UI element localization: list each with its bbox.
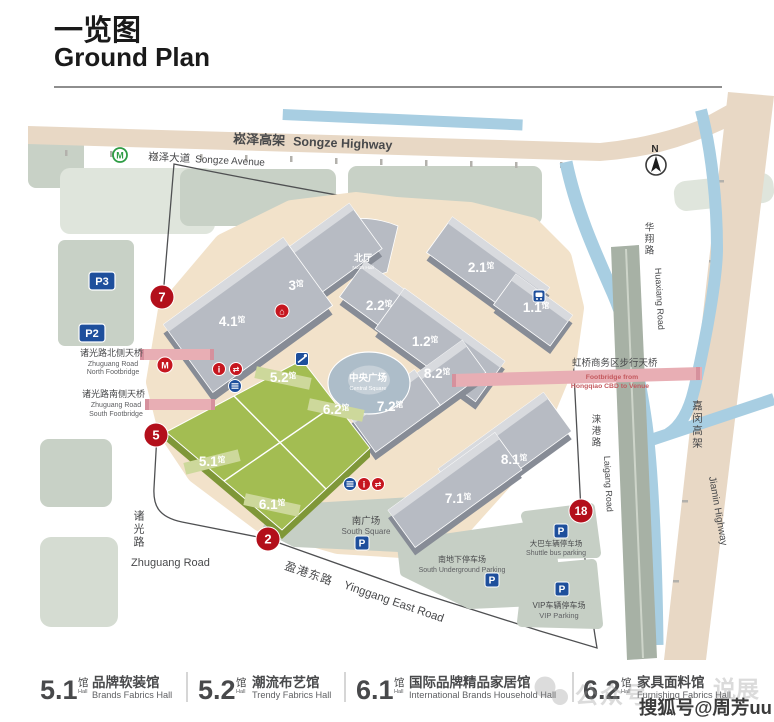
compass-label: N	[651, 144, 658, 155]
legend-hall-suffix: 馆	[78, 676, 89, 689]
watermark-sohu-text: 搜狐号@周芳uu	[639, 697, 772, 718]
page-title-en: Ground Plan	[54, 42, 210, 72]
hongqiao-footbridge-label-en1: Footbridge from	[586, 374, 638, 381]
legend-hall-name-en: International Brands Household Hall	[409, 690, 556, 700]
parking-badge-p3: P3	[89, 272, 115, 290]
laigang-road-label-zh: 涞港路	[590, 414, 602, 449]
legend-hall-name-zh: 潮流布艺馆	[252, 674, 320, 690]
house-icon: ⌂	[275, 304, 289, 318]
svg-text:P: P	[489, 576, 496, 587]
gate-marker-5: 5	[144, 423, 168, 447]
legend-hall-name-en: Brands Fabrics Hall	[92, 690, 172, 700]
svg-text:2: 2	[264, 532, 271, 547]
north-footbridge-label-en1: Zhuguang Road	[88, 361, 138, 368]
underground-parking-label-zh: 南地下停车场	[438, 554, 486, 564]
svg-text:5: 5	[152, 428, 159, 443]
parking-icon-shuttle: P	[554, 524, 568, 538]
svg-text:i: i	[363, 480, 366, 490]
parking-icon-south-square: P	[355, 536, 369, 550]
hongqiao-footbridge-label-en2: Hongqiao CBD to Venue	[571, 383, 649, 390]
svg-text:P3: P3	[95, 276, 108, 288]
legend-hall-suffix: 馆	[236, 676, 247, 689]
north-hall-label-zh: 北厅	[354, 252, 372, 263]
info-icon: i	[213, 363, 226, 376]
svg-text:⇄: ⇄	[233, 365, 240, 374]
info-icon: i	[358, 478, 371, 491]
south-footbridge-label-en1: Zhuguang Road	[91, 402, 141, 409]
shuttle-parking-label-en: Shuttle bus parking	[526, 550, 586, 557]
ticket-office-icon	[344, 478, 357, 491]
legend-hall-suffix: 馆	[394, 676, 405, 689]
legend-hall-name-en: Trendy Fabrics Hall	[252, 690, 331, 700]
jiamin-highway-label-zh: 嘉闵高架	[691, 399, 703, 450]
svg-text:7: 7	[158, 290, 165, 305]
north-footbridge-label-en2: North Footbridge	[87, 369, 140, 376]
legend-hall-suffix-en: Hall	[394, 689, 403, 695]
gate-marker-18: 18	[569, 499, 593, 523]
zhuguang-road-label-en: Zhuguang Road	[131, 557, 210, 569]
legend-hall-suffix-en: Hall	[236, 689, 245, 695]
svg-text:⌂: ⌂	[279, 307, 284, 317]
escalator-icon	[296, 353, 309, 366]
south-footbridge-label-zh: 诸光路南侧天桥	[82, 388, 145, 399]
city-block	[40, 439, 112, 507]
central-square-label-en: Central Square	[350, 386, 387, 392]
shuttle-parking-label-zh: 大巴车辆停车场	[530, 538, 583, 548]
north-hall-label-en: North Hall	[352, 265, 373, 271]
hongqiao-footbridge-label-zh: 虹桥商务区步行天桥	[572, 357, 658, 369]
ground-plan-page: 一览图 Ground Plan	[0, 0, 774, 722]
metro-station-icon-red: M	[157, 357, 173, 373]
legend-hall-name-zh: 国际品牌精品家居馆	[409, 674, 531, 690]
svg-text:18: 18	[575, 506, 588, 518]
svg-text:P: P	[558, 527, 565, 538]
central-square-label-zh: 中央广场	[349, 372, 388, 384]
north-footbridge	[140, 349, 214, 360]
vip-parking-label-zh: VIP车辆停车场	[533, 600, 586, 610]
shuttle-transfer-icon: ⇄	[230, 363, 243, 376]
city-block	[40, 537, 118, 627]
svg-text:i: i	[218, 365, 221, 375]
svg-text:P2: P2	[85, 328, 98, 340]
vip-parking-label-en: VIP Parking	[539, 611, 578, 620]
parking-icon-vip: P	[555, 582, 569, 596]
ground-plan-map: 一览图 Ground Plan	[0, 0, 774, 722]
legend-hall-number: 6.1	[356, 675, 394, 705]
metro-station-icon-green: M	[113, 148, 127, 162]
svg-text:M: M	[116, 151, 124, 161]
south-footbridge	[145, 399, 215, 410]
svg-text:M: M	[161, 361, 169, 371]
south-square-label-zh: 南广场	[352, 515, 381, 527]
svg-text:⇄: ⇄	[375, 480, 382, 489]
legend-hall-name-zh: 品牌软装馆	[92, 674, 160, 690]
legend-hall-number: 5.1	[40, 675, 78, 705]
north-footbridge-label-zh: 诸光路北侧天桥	[80, 347, 143, 358]
legend-hall-suffix-en: Hall	[78, 689, 87, 695]
huaxiang-road-label-zh: 华翔路	[643, 221, 655, 256]
parking-icon-underground: P	[485, 573, 499, 587]
svg-text:P: P	[559, 585, 566, 596]
svg-text:P: P	[359, 539, 366, 550]
ticket-office-icon	[229, 380, 242, 393]
zhuguang-road-label-zh: 诸光路	[132, 510, 145, 549]
south-footbridge-label-en2: South Footbridge	[89, 411, 143, 418]
gate-marker-7: 7	[150, 285, 174, 309]
south-square-label-en: South Square	[342, 527, 391, 536]
parking-badge-p2: P2	[79, 324, 105, 342]
legend-hall-number: 5.2	[198, 675, 236, 705]
shuttle-transfer-icon: ⇄	[372, 478, 385, 491]
gate-marker-2: 2	[256, 527, 280, 551]
station-facility-icon	[533, 290, 545, 302]
